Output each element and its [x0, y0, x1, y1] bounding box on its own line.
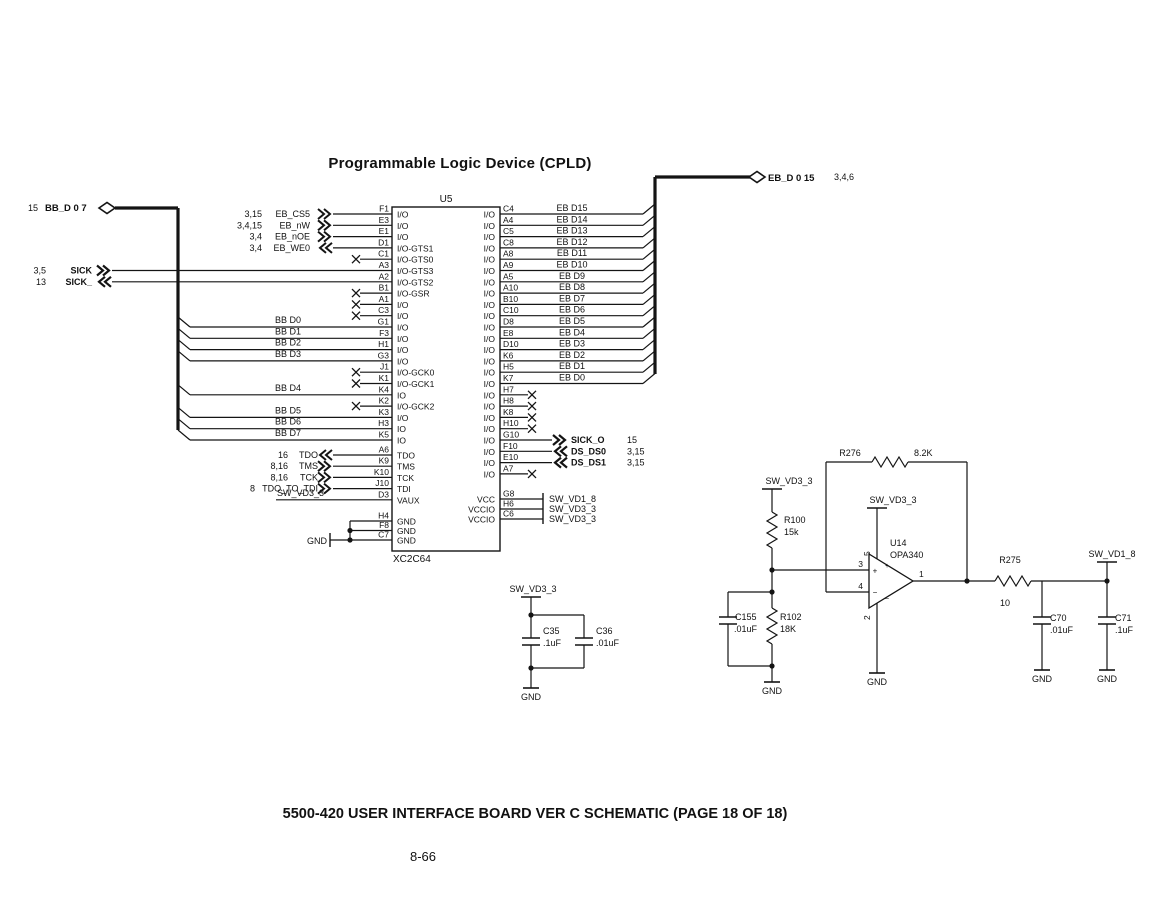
cpld-refdes: U5 — [440, 194, 453, 205]
sheet-refs: 3,15 — [627, 458, 645, 468]
pin-number: K8 — [503, 407, 514, 417]
pin-number: K5 — [379, 430, 390, 440]
component-value: .1uF — [1115, 625, 1134, 635]
pin-number: A10 — [503, 283, 518, 293]
pin-function: IO — [397, 390, 406, 400]
sheet-refs: 3,15 — [627, 446, 645, 456]
bus-entry — [643, 249, 655, 259]
net-label: EB D9 — [559, 271, 585, 281]
page-number: 8-66 — [410, 849, 436, 864]
pin-number: H3 — [378, 418, 389, 428]
pin-function: I/O-GTS2 — [397, 277, 434, 287]
net-label: TCK — [300, 472, 318, 482]
net-label: EB D13 — [556, 226, 587, 236]
net-label: EB D1 — [559, 361, 585, 371]
sheet-refs: 15 — [627, 435, 637, 445]
net-label: EB_nOE — [275, 232, 310, 242]
pin-number: G8 — [503, 489, 515, 499]
pin-function: I/O-GCK0 — [397, 368, 435, 378]
pin-number: C6 — [503, 509, 514, 519]
net-label: BB D5 — [275, 405, 301, 415]
pin-function: VAUX — [397, 495, 420, 505]
pin-function: I/O — [484, 345, 496, 355]
bus-entry — [643, 362, 655, 372]
net-label: SICK_ — [65, 277, 93, 287]
pin-number: 5 — [862, 551, 872, 556]
ground-net-label: GND — [762, 686, 783, 696]
pin-number: H7 — [503, 384, 514, 394]
pin-number: F3 — [379, 328, 389, 338]
pin-function: GND — [397, 517, 416, 527]
bus-entry — [643, 374, 655, 384]
net-label: EB D6 — [559, 305, 585, 315]
sheet-refs: 8,16 — [270, 472, 288, 482]
pin-function: TDI — [397, 484, 411, 494]
component-refdes: C36 — [596, 626, 613, 636]
pin-number: K9 — [379, 456, 390, 466]
pin-number: E10 — [503, 452, 518, 462]
net-label: EB D15 — [556, 203, 587, 213]
pin-function: I/O — [484, 334, 496, 344]
sheet-refs: 16 — [278, 450, 288, 460]
pin-function: GND — [397, 536, 416, 546]
resistor-icon — [995, 576, 1031, 586]
pin-function: VCCIO — [468, 505, 495, 515]
bus-entry — [643, 272, 655, 282]
sheet-refs: 3,5 — [33, 266, 46, 276]
pin-function: I/O — [484, 232, 496, 242]
bus-entry — [178, 351, 190, 361]
pin-number: J1 — [380, 362, 389, 372]
bus-entry — [178, 430, 190, 440]
pin-number: K2 — [379, 396, 390, 406]
offpage-chevron-icon — [326, 243, 332, 253]
pin-number: A9 — [503, 260, 514, 270]
pin-number: A1 — [379, 294, 390, 304]
pin-number: E3 — [379, 215, 390, 225]
pin-function: I/O-GTS1 — [397, 243, 434, 253]
bus-entry — [643, 227, 655, 237]
bus-diamond-icon — [749, 172, 765, 183]
component-refdes: C155 — [735, 612, 757, 622]
pin-function: TDO — [397, 451, 415, 461]
ground-net-label: GND — [307, 536, 328, 546]
pin-function: I/O — [397, 356, 409, 366]
pin-number: 1 — [919, 569, 924, 579]
bus-entry — [643, 317, 655, 327]
pin-function: I/O — [484, 311, 496, 321]
net-label: BB D4 — [275, 383, 301, 393]
component-refdes: R276 — [839, 448, 861, 458]
pin-number: 4 — [858, 581, 863, 591]
net-label: EB D11 — [557, 248, 587, 258]
offpage-chevron-icon — [318, 472, 324, 482]
component-refdes: C70 — [1050, 613, 1067, 623]
sheet-refs: 3,4 — [249, 243, 262, 253]
pin-function: I/O — [484, 289, 496, 299]
power-net-label: SW_VD3_3 — [765, 476, 812, 486]
bus-entry — [643, 261, 655, 271]
pin-function: I/O — [397, 300, 409, 310]
bus-entry — [178, 407, 190, 417]
bus-entry — [643, 328, 655, 338]
component-refdes: R275 — [999, 555, 1021, 565]
pin-function: TMS — [397, 462, 415, 472]
net-label: BB D6 — [275, 417, 301, 427]
net-label: EB D12 — [556, 237, 587, 247]
net-label: BB D3 — [275, 349, 301, 359]
net-label: DS_DS0 — [571, 446, 606, 456]
power-net-label: SW_VD3_3 — [869, 495, 916, 505]
sheet-refs: 3,4 — [249, 232, 262, 242]
bus-entry — [643, 294, 655, 304]
pin-number: C4 — [503, 204, 514, 214]
cpld-part-number: XC2C64 — [393, 554, 431, 565]
pin-number: A4 — [503, 215, 514, 225]
net-label: EB_WE0 — [273, 243, 310, 253]
bus-entry — [643, 238, 655, 248]
pin-number: K10 — [374, 467, 389, 477]
schematic-canvas: U5XC2C64F1I/OEB_CS53,15E3I/OEB_nW3,4,15E… — [0, 0, 1164, 899]
opamp-plus-icon: + — [873, 567, 878, 576]
pin-number: F1 — [379, 204, 389, 214]
pin-number: K6 — [503, 350, 514, 360]
component-value: .01uF — [596, 638, 620, 648]
bus-entry — [178, 340, 190, 350]
sheet-refs: 15 — [28, 203, 38, 213]
pin-number: H1 — [378, 339, 389, 349]
net-label: EB D8 — [559, 282, 585, 292]
pin-function: I/O — [484, 379, 496, 389]
pin-number: C1 — [378, 249, 389, 259]
pin-number: J10 — [375, 478, 389, 488]
pin-function: I/O — [484, 243, 496, 253]
bus-entry — [643, 351, 655, 361]
pin-number: C5 — [503, 226, 514, 236]
bus-diamond-icon — [99, 203, 115, 214]
pin-function: GND — [397, 526, 416, 536]
component-value: .1uF — [543, 638, 562, 648]
offpage-chevron-icon — [318, 209, 324, 219]
sheet-refs: 3,4,6 — [834, 172, 854, 182]
component-part: OPA340 — [890, 550, 923, 560]
net-label: EB D14 — [556, 214, 587, 224]
page-title: Programmable Logic Device (CPLD) — [160, 155, 760, 172]
resistor-icon — [767, 608, 777, 644]
pin-function: IO — [397, 424, 406, 434]
pin-number: C8 — [503, 237, 514, 247]
bus-entry — [643, 283, 655, 293]
offpage-chevron-icon — [318, 232, 324, 242]
net-label: TMS — [299, 461, 318, 471]
pin-number: K7 — [503, 373, 514, 383]
pin-number: K4 — [379, 384, 390, 394]
component-value: 15k — [784, 527, 799, 537]
net-label: EB D5 — [559, 316, 585, 326]
resistor-icon — [767, 512, 777, 548]
bus-entry — [643, 204, 655, 214]
bus-label: BB_D 0 7 — [45, 203, 87, 214]
pin-number: A5 — [503, 271, 514, 281]
pin-function: VCCIO — [468, 515, 495, 525]
junction-dot — [347, 528, 352, 533]
pin-number: C10 — [503, 305, 519, 315]
net-label: EB_CS5 — [275, 209, 310, 219]
pin-number: H4 — [378, 511, 389, 521]
bus-entry — [643, 306, 655, 316]
pin-function: I/O — [484, 210, 496, 220]
bus-entry — [643, 340, 655, 350]
offpage-chevron-icon — [561, 458, 567, 468]
pin-function: I/O — [484, 413, 496, 423]
pin-number: D8 — [503, 317, 514, 327]
pin-number: 2 — [862, 615, 872, 620]
net-label: EB_nW — [279, 220, 310, 230]
pin-number: A3 — [379, 260, 390, 270]
pin-function: I/O — [484, 266, 496, 276]
sheet-refs: 8,16 — [270, 461, 288, 471]
sheet-refs: 3,15 — [244, 209, 262, 219]
pin-function: I/O — [484, 356, 496, 366]
pin-function: I/O — [484, 458, 496, 468]
pin-function: I/O — [484, 323, 496, 333]
pin-function: I/O — [484, 436, 496, 446]
pin-function: I/O-GCK1 — [397, 379, 435, 389]
net-label: BB D2 — [275, 338, 301, 348]
net-label: EB D4 — [559, 327, 585, 337]
pin-number: A6 — [379, 445, 390, 455]
offpage-chevron-icon — [326, 450, 332, 460]
pin-function: I/O — [484, 424, 496, 434]
bus-label: EB_D 0 15 — [768, 173, 815, 184]
pin-number: H10 — [503, 418, 519, 428]
ground-net-label: GND — [1032, 674, 1053, 684]
bus-entry — [178, 328, 190, 338]
net-label: EB D3 — [559, 339, 585, 349]
pin-function: I/O — [397, 221, 409, 231]
pin-number: B1 — [379, 283, 390, 293]
bus-entry — [178, 419, 190, 429]
sheet-refs: 8 — [250, 484, 255, 494]
pin-number: C7 — [378, 530, 389, 540]
opamp-plus-icon: + — [885, 563, 889, 570]
pin-function: I/O — [484, 300, 496, 310]
net-label: EB D7 — [559, 293, 585, 303]
component-refdes: R102 — [780, 612, 802, 622]
pin-function: I/O — [397, 210, 409, 220]
pin-number: 3 — [858, 559, 863, 569]
net-label: BB D0 — [275, 315, 301, 325]
power-net-label: SW_VD3_3 — [509, 584, 556, 594]
net-label: SICK_O — [571, 435, 605, 445]
ground-net-label: GND — [867, 677, 888, 687]
component-value: 8.2K — [914, 448, 933, 458]
pin-function: TCK — [397, 473, 414, 483]
footer-title: 5500-420 USER INTERFACE BOARD VER C SCHE… — [185, 806, 885, 822]
power-net-label: SW_VD1_8 — [1088, 549, 1135, 559]
bus-entry — [643, 215, 655, 225]
pin-number: A2 — [379, 271, 390, 281]
bus-entry — [178, 385, 190, 395]
schematic-sheet: Programmable Logic Device (CPLD) U5XC2C6… — [0, 0, 1164, 899]
power-net-label: SW_VD3_3 — [549, 514, 596, 524]
net-label: BB D7 — [275, 428, 301, 438]
sheet-refs: 3,4,15 — [237, 220, 262, 230]
net-label: EB D0 — [559, 373, 585, 383]
pin-number: H5 — [503, 362, 514, 372]
pin-function: I/O — [484, 447, 496, 457]
pin-number: D1 — [378, 237, 389, 247]
sheet-refs: 13 — [36, 277, 46, 287]
pin-number: C3 — [378, 305, 389, 315]
offpage-chevron-icon — [553, 435, 559, 445]
pin-function: I/O-GTS0 — [397, 255, 434, 265]
ground-net-label: GND — [1097, 674, 1118, 684]
pin-number: E1 — [379, 226, 390, 236]
net-label: EB D10 — [556, 260, 587, 270]
pin-function: I/O-GCK2 — [397, 402, 435, 412]
pin-function: I/O — [397, 345, 409, 355]
opamp-symbol — [869, 554, 913, 608]
pin-function: I/O — [484, 402, 496, 412]
component-refdes: C35 — [543, 626, 560, 636]
pin-function: I/O — [397, 323, 409, 333]
net-label: EB D2 — [559, 350, 585, 360]
resistor-icon — [872, 457, 908, 467]
pin-number: F10 — [503, 441, 518, 451]
ground-net-label: GND — [521, 692, 542, 702]
power-net-label: SW_VD3_3 — [549, 504, 596, 514]
pin-number: A7 — [503, 463, 514, 473]
pin-function: I/O — [397, 334, 409, 344]
pin-number: E8 — [503, 328, 514, 338]
pin-number: D10 — [503, 339, 519, 349]
pin-number: G10 — [503, 430, 519, 440]
offpage-chevron-icon — [318, 220, 324, 230]
pin-number: F8 — [379, 520, 389, 530]
component-value: .01uF — [1050, 625, 1074, 635]
component-value: 10 — [1000, 598, 1010, 608]
pin-number: K3 — [379, 407, 390, 417]
pin-function: I/O-GTS3 — [397, 266, 434, 276]
pin-number: K1 — [379, 373, 390, 383]
component-refdes: R100 — [784, 515, 806, 525]
pin-function: I/O — [484, 221, 496, 231]
offpage-chevron-icon — [105, 277, 111, 287]
pin-number: D3 — [378, 489, 389, 499]
net-label: SICK — [70, 266, 92, 276]
pin-function: I/O — [484, 469, 496, 479]
pin-number: A8 — [503, 249, 514, 259]
component-refdes: C71 — [1115, 613, 1132, 623]
power-net-label: SW_VD1_8 — [549, 494, 596, 504]
pin-number: G1 — [378, 317, 390, 327]
net-label: BB D1 — [275, 326, 301, 336]
pin-function: IO — [397, 436, 406, 446]
pin-number: H8 — [503, 396, 514, 406]
pin-number: H6 — [503, 499, 514, 509]
pin-function: I/O — [484, 255, 496, 265]
net-label: DS_DS1 — [571, 458, 606, 468]
offpage-chevron-icon — [318, 461, 324, 471]
pin-function: I/O — [484, 368, 496, 378]
offpage-chevron-icon — [97, 266, 103, 276]
component-value: 18K — [780, 624, 796, 634]
pin-function: VCC — [477, 495, 495, 505]
opamp-minus-icon: − — [873, 588, 878, 597]
bus-entry — [178, 317, 190, 327]
pin-function: I/O — [397, 311, 409, 321]
pin-function: I/O — [397, 232, 409, 242]
power-net-label: SW_VD3_3 — [277, 488, 324, 498]
pin-number: G3 — [378, 350, 390, 360]
pin-function: I/O — [484, 390, 496, 400]
pin-function: I/O — [397, 413, 409, 423]
pin-function: I/O — [484, 277, 496, 287]
pin-number: B10 — [503, 294, 518, 304]
component-value: .01uF — [734, 624, 758, 634]
offpage-chevron-icon — [561, 446, 567, 456]
component-refdes: U14 — [890, 538, 907, 548]
pin-function: I/O-GSR — [397, 289, 430, 299]
net-label: TDO — [299, 450, 318, 460]
opamp-minus-icon: − — [885, 596, 889, 603]
